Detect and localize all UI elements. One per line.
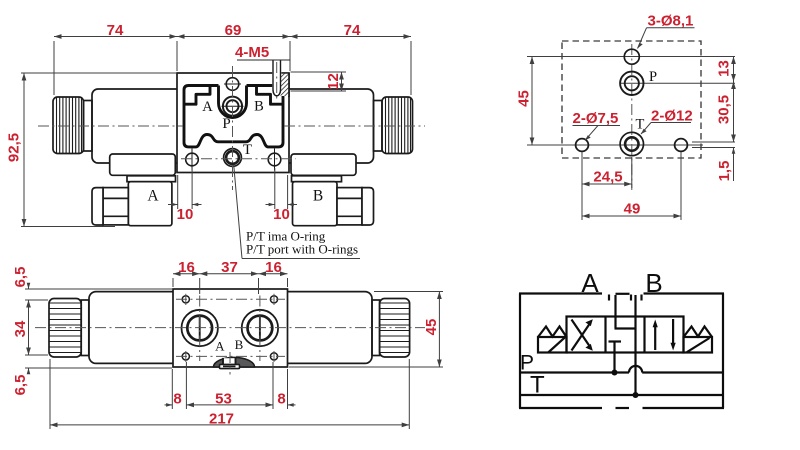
svg-text:74: 74 xyxy=(107,22,124,39)
svg-text:6,5: 6,5 xyxy=(12,375,29,396)
svg-text:T: T xyxy=(530,372,545,399)
svg-text:A: A xyxy=(202,99,213,115)
svg-text:8: 8 xyxy=(277,390,285,407)
svg-text:B: B xyxy=(254,99,264,115)
svg-text:49: 49 xyxy=(624,201,641,218)
svg-text:16: 16 xyxy=(265,259,282,276)
svg-text:P: P xyxy=(222,116,230,132)
svg-text:1,5: 1,5 xyxy=(716,161,733,182)
svg-text:3-Ø8,1: 3-Ø8,1 xyxy=(648,13,694,30)
svg-text:4-M5: 4-M5 xyxy=(235,44,269,61)
svg-text:69: 69 xyxy=(225,22,242,39)
svg-text:13: 13 xyxy=(716,60,733,77)
svg-text:10: 10 xyxy=(177,206,194,223)
svg-text:2-Ø7,5: 2-Ø7,5 xyxy=(573,110,619,127)
svg-text:B: B xyxy=(235,337,244,352)
svg-text:217: 217 xyxy=(209,410,234,427)
svg-text:A: A xyxy=(147,188,159,205)
svg-text:45: 45 xyxy=(516,90,533,107)
svg-text:6,5: 6,5 xyxy=(12,267,29,288)
svg-text:92,5: 92,5 xyxy=(6,133,23,162)
svg-text:P/T port with O-rings: P/T port with O-rings xyxy=(246,242,358,257)
svg-text:B: B xyxy=(313,188,323,205)
svg-text:10: 10 xyxy=(273,206,290,223)
svg-text:B: B xyxy=(645,268,662,298)
svg-text:16: 16 xyxy=(178,259,195,276)
svg-text:30,5: 30,5 xyxy=(716,95,733,124)
svg-text:P: P xyxy=(649,69,657,85)
svg-text:37: 37 xyxy=(221,259,238,276)
svg-text:2-Ø12: 2-Ø12 xyxy=(651,108,693,125)
svg-text:34: 34 xyxy=(12,320,29,337)
svg-text:74: 74 xyxy=(344,22,361,39)
svg-text:A: A xyxy=(215,339,225,354)
svg-text:T: T xyxy=(243,142,252,158)
svg-text:24,5: 24,5 xyxy=(593,169,622,186)
svg-text:A: A xyxy=(581,268,599,298)
svg-text:12: 12 xyxy=(325,73,342,90)
svg-text:45: 45 xyxy=(423,319,440,336)
svg-text:53: 53 xyxy=(215,390,232,407)
svg-text:8: 8 xyxy=(173,390,181,407)
